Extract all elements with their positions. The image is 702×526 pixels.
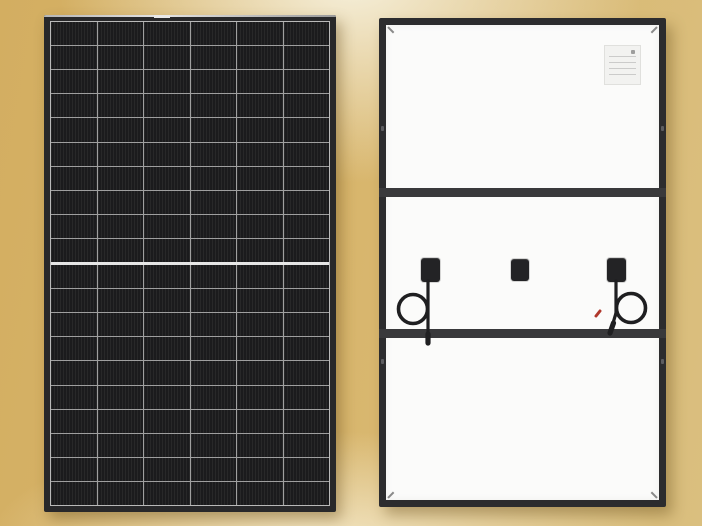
solar-cell [144,458,190,481]
solar-cell [98,265,144,288]
solar-cell [144,239,190,262]
cell-grid [50,21,330,506]
solar-cell [237,191,283,214]
solar-cell [51,265,97,288]
solar-cell [51,337,97,360]
solar-cell [191,94,237,117]
solar-cell [284,167,330,190]
solar-cell [191,70,237,93]
backsheet [386,25,659,500]
solar-cell [98,46,144,69]
solar-cell [191,215,237,238]
solar-cell [144,482,190,505]
solar-cell [237,337,283,360]
solar-panel-back [379,18,666,507]
solar-cell [51,22,97,45]
solar-cell [284,215,330,238]
solar-cell [191,239,237,262]
solar-cell [98,167,144,190]
solar-cell [284,70,330,93]
frame-screw [381,126,384,131]
solar-cell [191,361,237,384]
solar-cell [98,458,144,481]
solar-cell [98,434,144,457]
solar-cell [237,289,283,312]
frame-screw [661,359,664,364]
solar-cell [144,167,190,190]
solar-cell [237,482,283,505]
cell-grid-top-half [51,22,329,262]
solar-cell [144,434,190,457]
solar-cell [237,215,283,238]
solar-cell [237,458,283,481]
solar-cell [284,143,330,166]
solar-cell [284,386,330,409]
solar-cell [51,410,97,433]
solar-cell [98,22,144,45]
solar-cell [284,239,330,262]
solar-cell [144,143,190,166]
solar-cell [284,410,330,433]
solar-cell [98,70,144,93]
solar-cell [51,289,97,312]
cable-left [399,281,429,343]
solar-cell [51,386,97,409]
solar-cell [144,46,190,69]
frame-top-tab [154,15,170,18]
solar-cell [144,337,190,360]
frame-screw [381,359,384,364]
solar-cell [237,265,283,288]
solar-cell [191,458,237,481]
solar-cell [237,410,283,433]
solar-cell [144,410,190,433]
solar-cell [191,143,237,166]
frame-screw [661,126,664,131]
solar-cell [51,191,97,214]
solar-cell [191,313,237,336]
solar-cell [51,458,97,481]
solar-cell [144,289,190,312]
solar-cell [144,215,190,238]
frame-top-highlight [44,15,336,17]
solar-cell [191,46,237,69]
solar-cell [284,94,330,117]
cell-grid-bottom-half [51,265,329,505]
solar-cell [144,386,190,409]
solar-cell [191,167,237,190]
solar-cell [191,386,237,409]
solar-cell [51,143,97,166]
solar-cell [191,265,237,288]
solar-cell [51,94,97,117]
solar-cell [284,434,330,457]
solar-cell [98,239,144,262]
solar-cell [284,313,330,336]
solar-cell [51,215,97,238]
solar-cell [237,386,283,409]
solar-cell [51,361,97,384]
solar-cell [237,22,283,45]
solar-cell [144,265,190,288]
solar-cell [144,94,190,117]
solar-cell [237,70,283,93]
cable-right [596,281,646,333]
solar-cell [237,361,283,384]
solar-cell [51,70,97,93]
solar-cell [284,482,330,505]
solar-cell [98,215,144,238]
cable-assembly [386,25,659,500]
solar-panel-front [44,15,336,512]
solar-cell [51,167,97,190]
solar-cell [51,46,97,69]
product-image [0,0,702,526]
solar-cell [51,482,97,505]
solar-cell [98,289,144,312]
solar-cell [98,94,144,117]
solar-cell [237,434,283,457]
solar-cell [191,434,237,457]
solar-cell [237,239,283,262]
solar-cell [98,482,144,505]
solar-cell [98,386,144,409]
solar-cell [237,143,283,166]
solar-cell [237,46,283,69]
solar-cell [191,22,237,45]
solar-cell [284,337,330,360]
solar-cell [284,118,330,141]
solar-cell [284,46,330,69]
solar-cell [237,94,283,117]
solar-cell [191,410,237,433]
solar-cell [191,337,237,360]
solar-cell [284,191,330,214]
solar-cell [144,361,190,384]
solar-cell [98,191,144,214]
solar-cell [191,482,237,505]
solar-cell [284,361,330,384]
solar-cell [144,313,190,336]
solar-cell [98,143,144,166]
solar-cell [98,118,144,141]
solar-cell [191,191,237,214]
solar-cell [237,118,283,141]
solar-cell [51,239,97,262]
solar-cell [237,313,283,336]
solar-cell [98,361,144,384]
solar-cell [191,118,237,141]
solar-cell [284,265,330,288]
solar-cell [144,191,190,214]
solar-cell [51,434,97,457]
solar-cell [191,289,237,312]
solar-cell [98,410,144,433]
solar-cell [144,70,190,93]
solar-cell [237,167,283,190]
solar-cell [284,22,330,45]
solar-cell [284,289,330,312]
solar-cell [98,337,144,360]
solar-cell [144,22,190,45]
solar-cell [51,313,97,336]
solar-cell [51,118,97,141]
solar-cell [284,458,330,481]
solar-cell [144,118,190,141]
solar-cell [98,313,144,336]
